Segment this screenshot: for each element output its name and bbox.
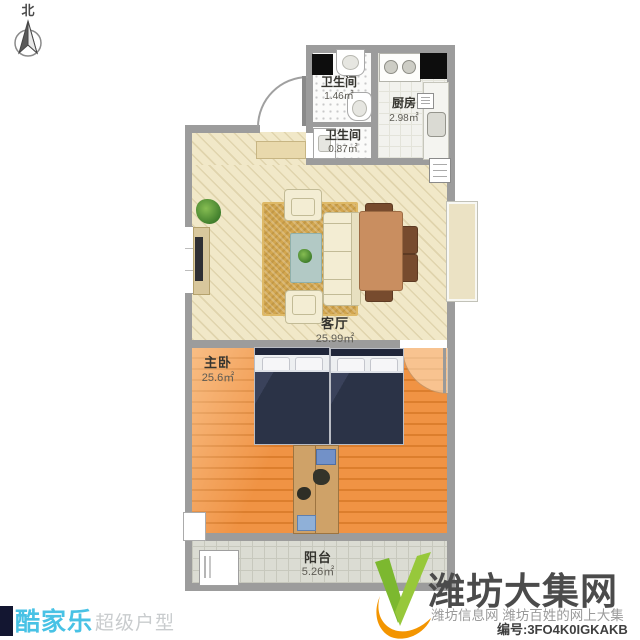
sofa xyxy=(323,212,361,306)
living-bay-window xyxy=(447,202,477,301)
desk-bag-1 xyxy=(313,469,330,485)
wall-bedroom-balcony xyxy=(185,533,455,541)
kujiale-logo-text: 酷家乐 xyxy=(15,602,93,638)
desk-bag-2 xyxy=(297,487,311,500)
wall-radiator xyxy=(429,158,451,183)
entry-shoe-cabinet xyxy=(256,141,306,159)
duct-shaft-bathroom xyxy=(312,54,333,75)
desk-item-blue xyxy=(297,515,316,531)
room-area-bathroom-bottom: 0.87㎡ xyxy=(310,140,376,155)
bedroom-door-leaf xyxy=(443,348,446,393)
kujiale-logo-badge xyxy=(0,606,13,636)
living-west-window xyxy=(185,226,193,294)
stove xyxy=(379,53,421,82)
room-area-bathroom-top: 1.46㎡ xyxy=(306,87,372,102)
dining-table xyxy=(359,211,403,291)
entry-door-arc xyxy=(257,76,308,127)
desk-books xyxy=(316,449,336,465)
wall-top xyxy=(306,45,455,53)
room-area-balcony: 5.26㎡ xyxy=(278,563,358,579)
bathroom-sink xyxy=(336,49,365,76)
potted-plant xyxy=(196,199,221,224)
floorplan-image: 北 xyxy=(0,0,640,640)
washing-machine xyxy=(199,550,239,586)
bed-right xyxy=(330,348,404,445)
kujiale-tagline: 超级户型 xyxy=(95,608,175,635)
watermark-serial: 编号:3FO4K0IGKAKB xyxy=(497,619,628,638)
compass-north-label: 北 xyxy=(10,4,46,18)
wall-entry-top xyxy=(185,125,260,133)
bed-left xyxy=(254,347,330,445)
compass-needle-icon xyxy=(11,18,45,60)
room-area-kitchen: 2.98㎡ xyxy=(376,109,432,124)
tv xyxy=(195,237,203,281)
weifang-daji-logo-icon xyxy=(374,552,432,640)
room-area-living: 25.99㎡ xyxy=(290,330,380,346)
coffee-table-plant xyxy=(298,249,312,263)
room-area-bedroom: 25.6㎡ xyxy=(193,369,243,385)
duct-shaft-kitchen xyxy=(420,53,447,79)
wall-recess xyxy=(183,512,206,541)
wardrobe-desk xyxy=(293,445,339,534)
armchair-top xyxy=(284,189,322,221)
compass: 北 xyxy=(10,4,46,65)
